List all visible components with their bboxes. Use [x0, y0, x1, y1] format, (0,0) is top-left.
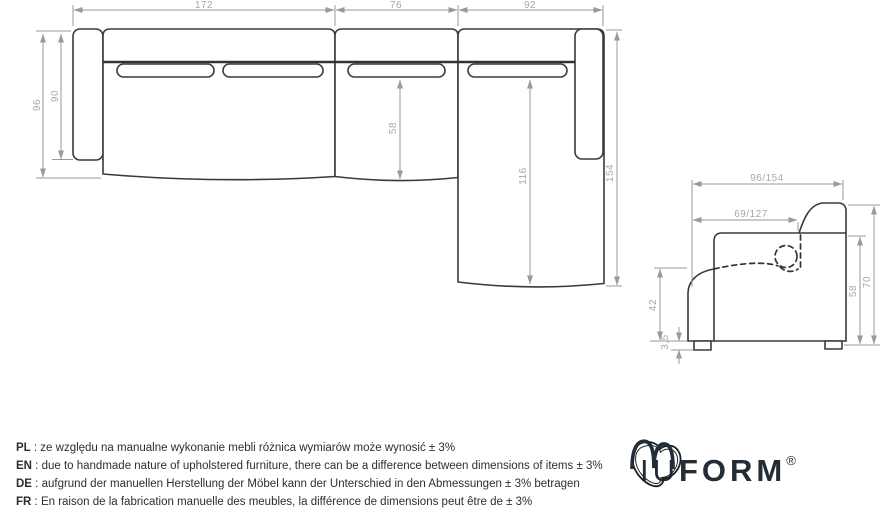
- dim-label-width-main: 172: [195, 0, 213, 11]
- dim-label-total-height: 70: [862, 276, 873, 288]
- note-sep: :: [31, 442, 41, 454]
- note-fr: FR : En raison de la fabrication manuell…: [16, 493, 603, 511]
- dim-label-depth-arm: 90: [50, 90, 61, 102]
- furniture-dimension-sheet: 172 76 92 96 90 58 116 154: [0, 0, 880, 520]
- note-text-fr: En raison de la fabrication manuelle des…: [41, 496, 532, 508]
- note-sep: :: [32, 478, 42, 490]
- side-view-seat-top: [714, 233, 846, 341]
- logo-text-form: FORM: [679, 455, 786, 486]
- note-en: EN : due to handmade nature of upholster…: [16, 457, 603, 475]
- side-view-back-leg: [825, 341, 842, 349]
- note-text-pl: ze względu na manualne wykonanie mebli r…: [40, 442, 455, 454]
- dim-label-depth-total: 96: [32, 99, 43, 111]
- sofa-top-view: 172 76 92 96 90 58 116 154: [32, 0, 622, 287]
- note-text-de: aufgrund der manuellen Herstellung der M…: [42, 478, 580, 490]
- side-view-hidden-cushion: [714, 235, 801, 271]
- dim-label-chaise-inner: 116: [518, 167, 529, 184]
- back-cushion-2: [223, 64, 323, 77]
- registered-mark: ®: [786, 453, 796, 468]
- note-text-en: due to handmade nature of upholstered fu…: [42, 460, 603, 472]
- top-view-section-1: [103, 29, 335, 180]
- dim-label-chaise-total: 154: [605, 164, 616, 182]
- note-lang-fr: FR: [16, 496, 31, 508]
- note-sep: :: [32, 460, 42, 472]
- note-lang-de: DE: [16, 478, 32, 490]
- back-cushion-3: [348, 64, 445, 77]
- note-de: DE : aufgrund der manuellen Herstellung …: [16, 475, 603, 493]
- dim-label-side-seat-depth: 69/127: [734, 209, 768, 220]
- dim-label-seat-height: 42: [648, 299, 659, 311]
- side-view-front-leg: [694, 341, 711, 350]
- back-cushion-1: [117, 64, 214, 77]
- dim-label-side-depth: 96/154: [750, 173, 784, 184]
- tolerance-notes: PL : ze względu na manualne wykonanie me…: [16, 439, 603, 511]
- note-pl: PL : ze względu na manualne wykonanie me…: [16, 439, 603, 457]
- dim-label-width-chaise: 92: [524, 0, 536, 11]
- dim-label-seat-depth: 58: [388, 122, 399, 134]
- dim-label-width-mid: 76: [390, 0, 402, 11]
- sofa-side-view: 96/154 69/127 42 3,5 58 70: [648, 173, 880, 364]
- top-view-section-2: [335, 29, 458, 181]
- dim-label-leg-height: 3,5: [660, 334, 671, 349]
- back-cushion-4: [468, 64, 567, 77]
- top-view-right-armrest: [575, 29, 603, 159]
- note-lang-pl: PL: [16, 442, 31, 454]
- side-view-backrest: [799, 203, 846, 341]
- stylized-m-icon: [628, 438, 678, 469]
- note-lang-en: EN: [16, 460, 32, 472]
- top-view-left-armrest: [73, 29, 103, 160]
- note-sep: :: [31, 496, 41, 508]
- dim-label-back-height: 58: [848, 285, 859, 297]
- miuform-logo: IUFORM®: [628, 438, 878, 502]
